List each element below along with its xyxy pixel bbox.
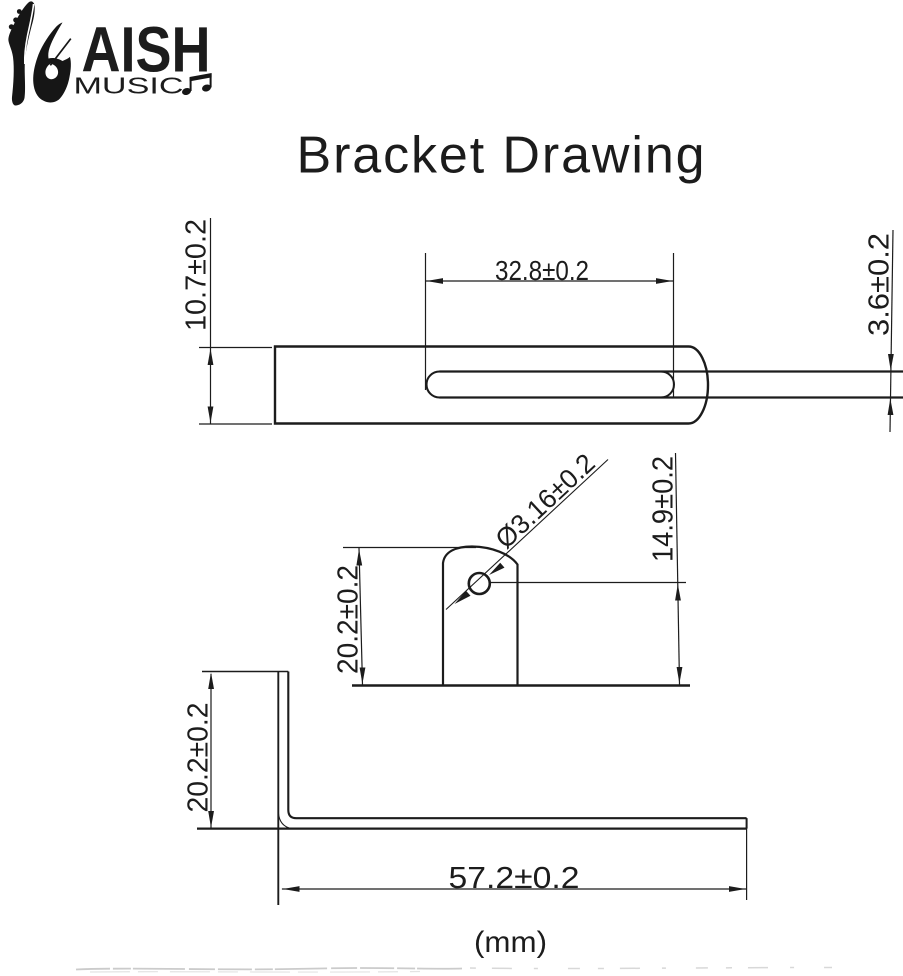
svg-text:20.2±0.2: 20.2±0.2: [333, 565, 365, 674]
svg-text:14.9±0.2: 14.9±0.2: [648, 456, 680, 562]
svg-text:10.7±0.2: 10.7±0.2: [181, 219, 213, 331]
svg-text:Ø3.16±0.2: Ø3.16±0.2: [490, 448, 601, 555]
svg-text:3.6±0.2: 3.6±0.2: [864, 233, 896, 336]
svg-text:MUSIC: MUSIC: [74, 73, 184, 99]
svg-text:20.2±0.2: 20.2±0.2: [183, 703, 215, 813]
svg-text:(mm): (mm): [474, 926, 547, 959]
svg-text:57.2±0.2: 57.2±0.2: [449, 860, 580, 895]
svg-text:32.8±0.2: 32.8±0.2: [495, 255, 589, 286]
svg-text:Bracket Drawing: Bracket Drawing: [297, 127, 707, 185]
